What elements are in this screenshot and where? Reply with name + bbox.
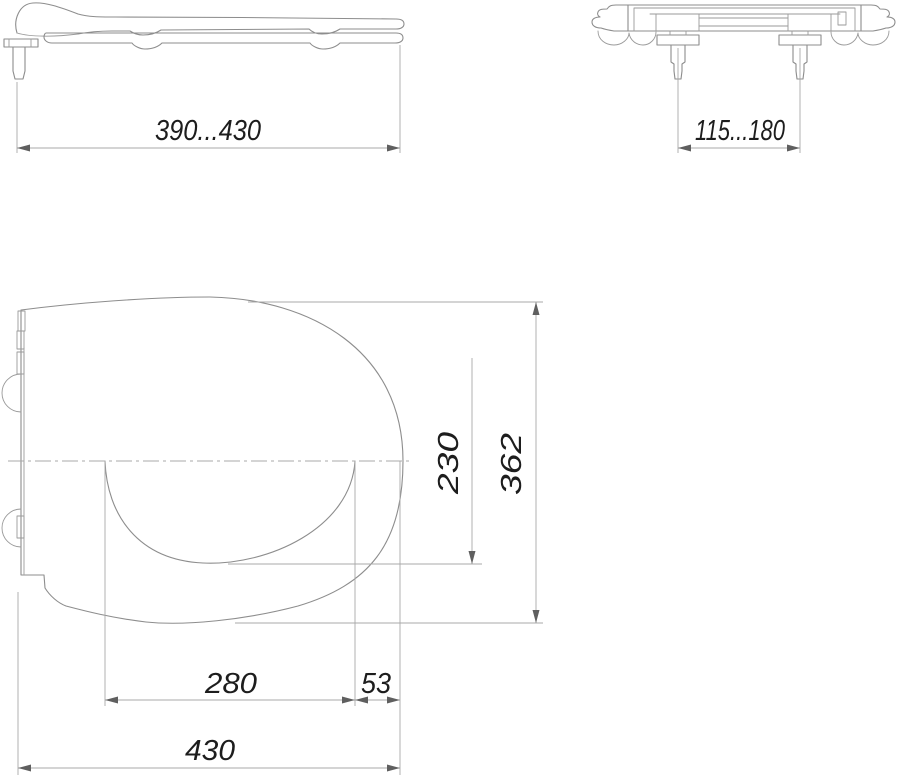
dim-bolt-spacing: 115...180 — [678, 48, 800, 153]
dim-overall-length: 430 — [18, 461, 400, 775]
rear-left-cap — [592, 5, 628, 31]
technical-drawing-canvas: 390...430 115...180 — [0, 0, 900, 777]
dim-label-bolt-spacing: 115...180 — [695, 115, 785, 147]
dim-opening-width-arrow — [469, 551, 476, 564]
side-bolt — [13, 47, 25, 79]
rear-housing-inner — [634, 8, 855, 31]
dim-label-opening-length: 280 — [204, 668, 257, 700]
side-view — [4, 3, 404, 79]
dim-label-opening-width: 230 — [433, 432, 465, 495]
plan-opening-outline — [105, 461, 355, 563]
rear-right-scallops — [831, 31, 889, 45]
dim-opening-length: 280 — [105, 461, 355, 706]
side-lid-outline — [16, 3, 404, 35]
dim-front-lip: 53 — [355, 668, 400, 704]
rear-right-cap — [861, 5, 895, 31]
plan-hinge-bump-bottom — [2, 509, 21, 547]
technical-drawing-page: 390...430 115...180 — [0, 0, 900, 777]
dim-length-range: 390...430 — [17, 45, 400, 153]
rear-left-scallops — [598, 31, 656, 45]
side-hinge-plate-detail — [9, 39, 31, 47]
plan-outer-outline — [21, 297, 403, 623]
plan-hinge-bump-top — [2, 374, 21, 412]
rear-hinge-bar — [699, 18, 788, 26]
dim-overall-width: 362 — [235, 302, 543, 623]
side-seat-outline — [44, 33, 403, 49]
dim-label-length-range: 390...430 — [155, 115, 261, 147]
dim-label-front-lip: 53 — [361, 668, 391, 700]
dim-label-overall-width: 362 — [496, 433, 528, 495]
dim-label-overall-length: 430 — [185, 735, 235, 767]
rear-view — [592, 5, 895, 79]
rear-hinge-blocks — [656, 14, 831, 31]
dim-overall-length-extensions — [18, 461, 400, 775]
rear-bolt-necks — [670, 31, 808, 35]
plan-view — [2, 297, 412, 623]
rear-bolt-flanges — [657, 35, 821, 45]
